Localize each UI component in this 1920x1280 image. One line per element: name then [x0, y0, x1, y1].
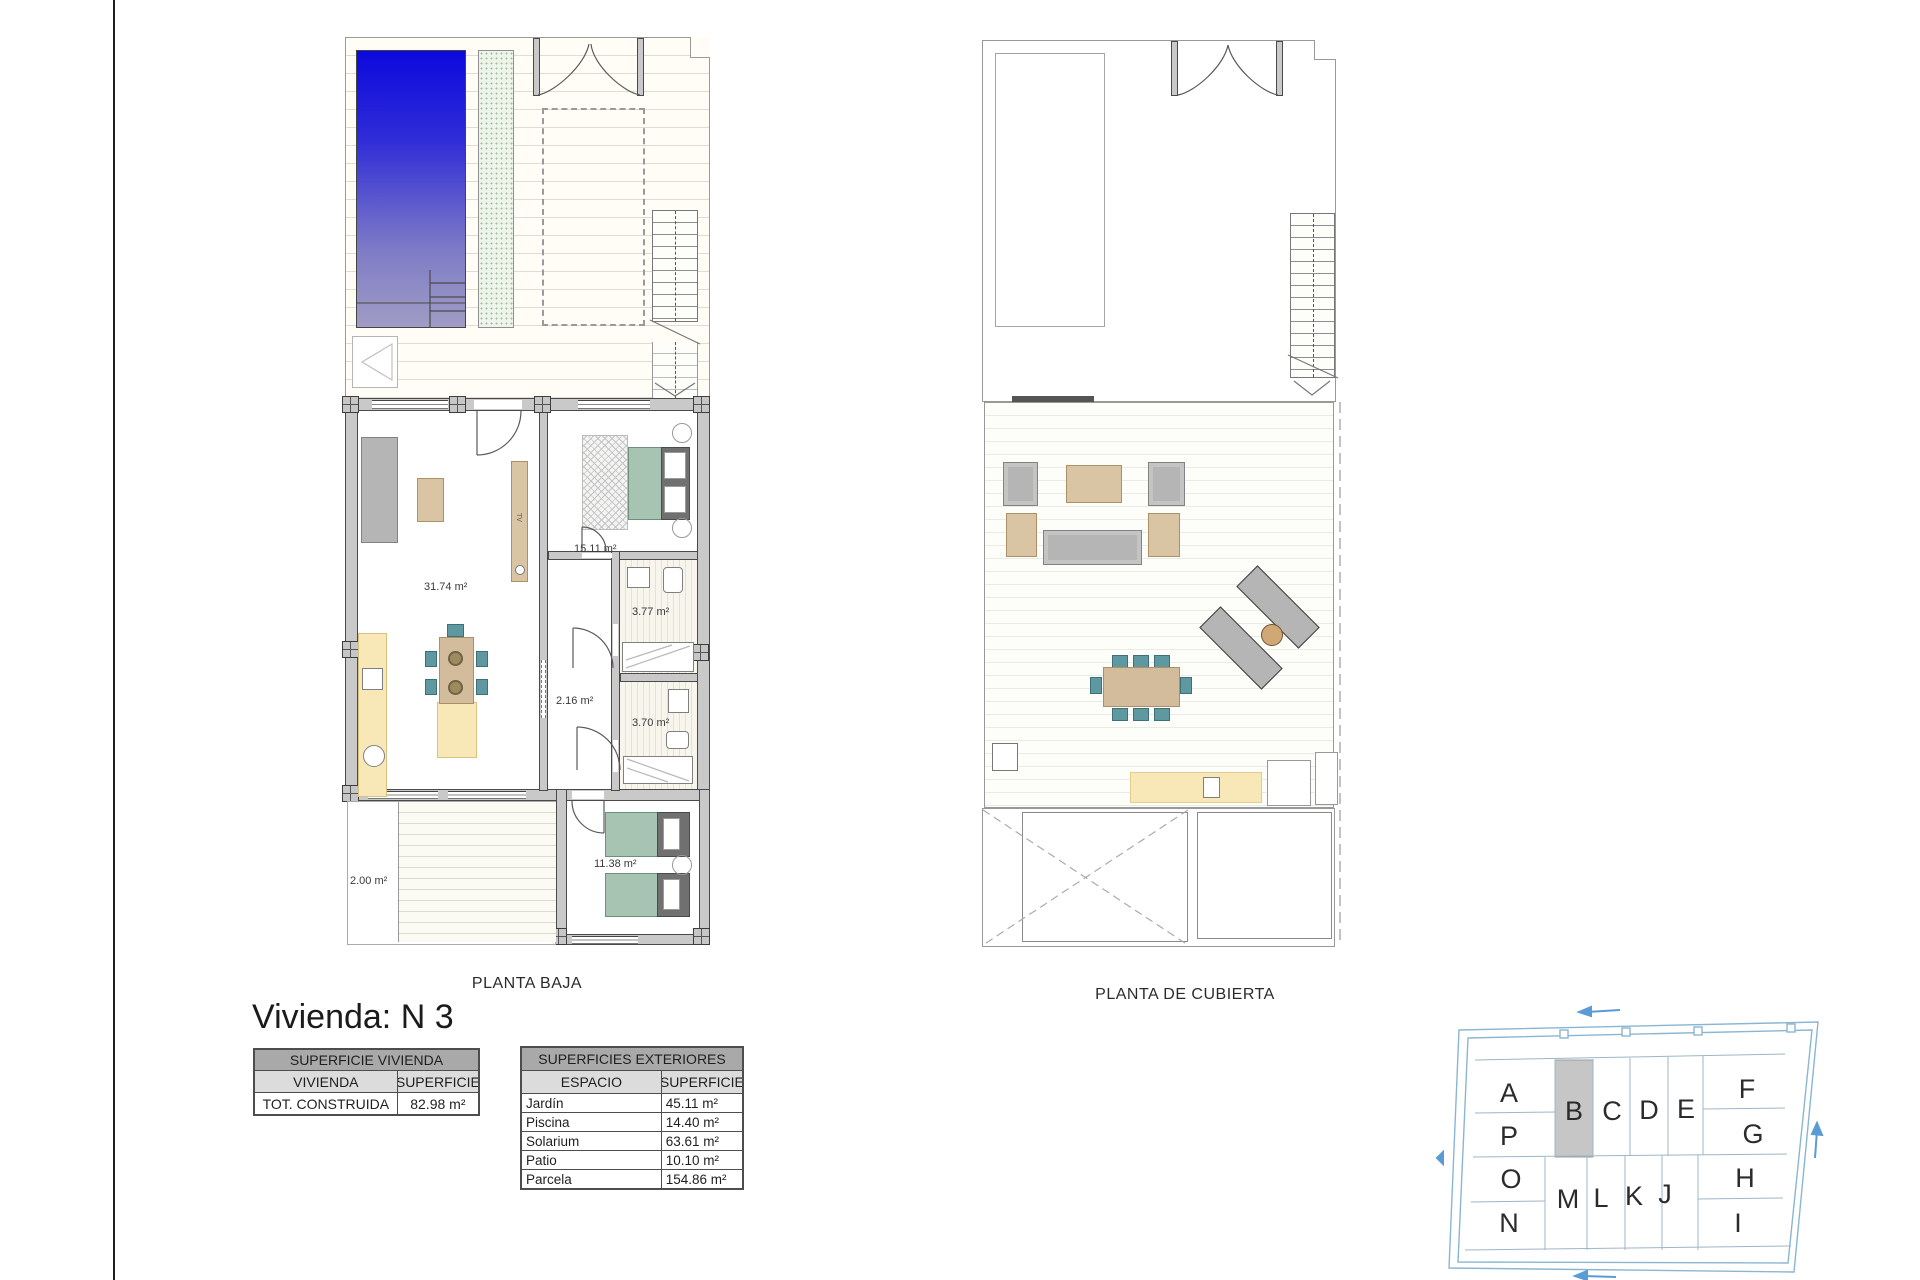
roof-stair-break: [1288, 355, 1338, 378]
site-unit-l: L: [1593, 1183, 1608, 1213]
site-unit-c: C: [1602, 1096, 1622, 1126]
site-unit-e: E: [1677, 1094, 1695, 1124]
drawing-sheet: TV 31.74 m² 15.11 m² 3.77 m² 2.16 m² 3.7…: [0, 0, 1920, 1280]
table-cell-label: Solarium: [522, 1132, 661, 1150]
door-arc-bath2: [577, 727, 620, 770]
gate-curtain-left: [538, 44, 589, 95]
door-arc-bath1: [573, 628, 613, 668]
site-unit-h: H: [1735, 1163, 1755, 1193]
table-row: Piscina 14.40 m²: [522, 1112, 742, 1131]
table-col-header: SUPERFICIE: [397, 1071, 478, 1092]
shower-triangle: [362, 344, 392, 380]
table-title: SUPERFICIES EXTERIORES: [522, 1051, 742, 1067]
roof-plan-caption: PLANTA DE CUBIERTA: [1025, 986, 1345, 1004]
table-row: Jardín 45.11 m²: [522, 1093, 742, 1112]
site-key-plan: A P O N B C D E F G M L K J H I: [1435, 980, 1835, 1280]
door-arc-bedroom2: [572, 801, 604, 833]
table-superficie-vivienda: SUPERFICIE VIVIENDA VIVIENDA SUPERFICIE …: [253, 1048, 480, 1116]
site-unit-n: N: [1499, 1208, 1519, 1238]
stair-break-line: [650, 320, 700, 344]
table-cell-label: Jardín: [522, 1094, 661, 1112]
site-unit-m: M: [1557, 1184, 1580, 1214]
table-cell-value: 154.86 m²: [661, 1170, 742, 1188]
site-unit-a: A: [1500, 1078, 1518, 1108]
table-superficies-exteriores: SUPERFICIES EXTERIORES ESPACIO SUPERFICI…: [520, 1046, 744, 1190]
table-row: TOT. CONSTRUIDA 82.98 m²: [255, 1092, 478, 1114]
table-row: Patio 10.10 m²: [522, 1150, 742, 1169]
site-tab: [1787, 1024, 1795, 1032]
site-unit-f: F: [1739, 1074, 1756, 1104]
road-arrow-left-fragment: [1437, 1152, 1443, 1164]
table-cell-value: 82.98 m²: [397, 1093, 478, 1114]
door-arc-bedroom1: [582, 527, 606, 551]
table-col-header: VIVIENDA: [255, 1071, 397, 1092]
table-col-header: SUPERFICIE: [661, 1071, 742, 1093]
pool-steps: [430, 270, 465, 328]
site-unit-o: O: [1500, 1164, 1521, 1194]
roof-plan-details: [975, 30, 1350, 960]
table-cell-value: 45.11 m²: [661, 1094, 742, 1112]
site-unit-b: B: [1565, 1096, 1583, 1126]
table-row: Solarium 63.61 m²: [522, 1131, 742, 1150]
site-unit-j: J: [1658, 1179, 1672, 1209]
roof-cross-bracing: [983, 810, 1188, 945]
roof-gate-curtain-left: [1178, 45, 1228, 95]
roof-stair-arrow-down: [1294, 381, 1330, 395]
site-tab: [1560, 1030, 1568, 1038]
table-cell-label: Parcela: [522, 1170, 661, 1188]
page-title: Vivienda: N 3: [252, 998, 454, 1037]
roof-gate-curtain-right: [1228, 45, 1278, 95]
site-tab: [1622, 1028, 1630, 1036]
table-col-header: ESPACIO: [522, 1071, 661, 1093]
ground-plan-details: [340, 30, 720, 960]
site-tab: [1694, 1027, 1702, 1035]
table-cell-label: TOT. CONSTRUIDA: [255, 1093, 397, 1114]
table-cell-label: Piscina: [522, 1113, 661, 1131]
ground-plan-caption: PLANTA BAJA: [367, 975, 687, 993]
site-unit-g: G: [1742, 1119, 1763, 1149]
table-cell-value: 63.61 m²: [661, 1132, 742, 1150]
site-unit-i: I: [1734, 1208, 1742, 1238]
stair-arrow-down: [655, 383, 695, 396]
table-cell-value: 14.40 m²: [661, 1113, 742, 1131]
table-title: SUPERFICIE VIVIENDA: [255, 1052, 478, 1068]
site-unit-d: D: [1639, 1095, 1659, 1125]
site-unit-k: K: [1625, 1181, 1643, 1211]
shower-drain-lines: [626, 645, 690, 782]
sheet-frame-line: [113, 0, 115, 1280]
gate-curtain-right: [591, 44, 640, 95]
table-row: Parcela 154.86 m²: [522, 1169, 742, 1188]
table-cell-label: Patio: [522, 1151, 661, 1169]
door-arc-entry: [477, 411, 521, 455]
site-unit-p: P: [1500, 1121, 1518, 1151]
table-cell-value: 10.10 m²: [661, 1151, 742, 1169]
